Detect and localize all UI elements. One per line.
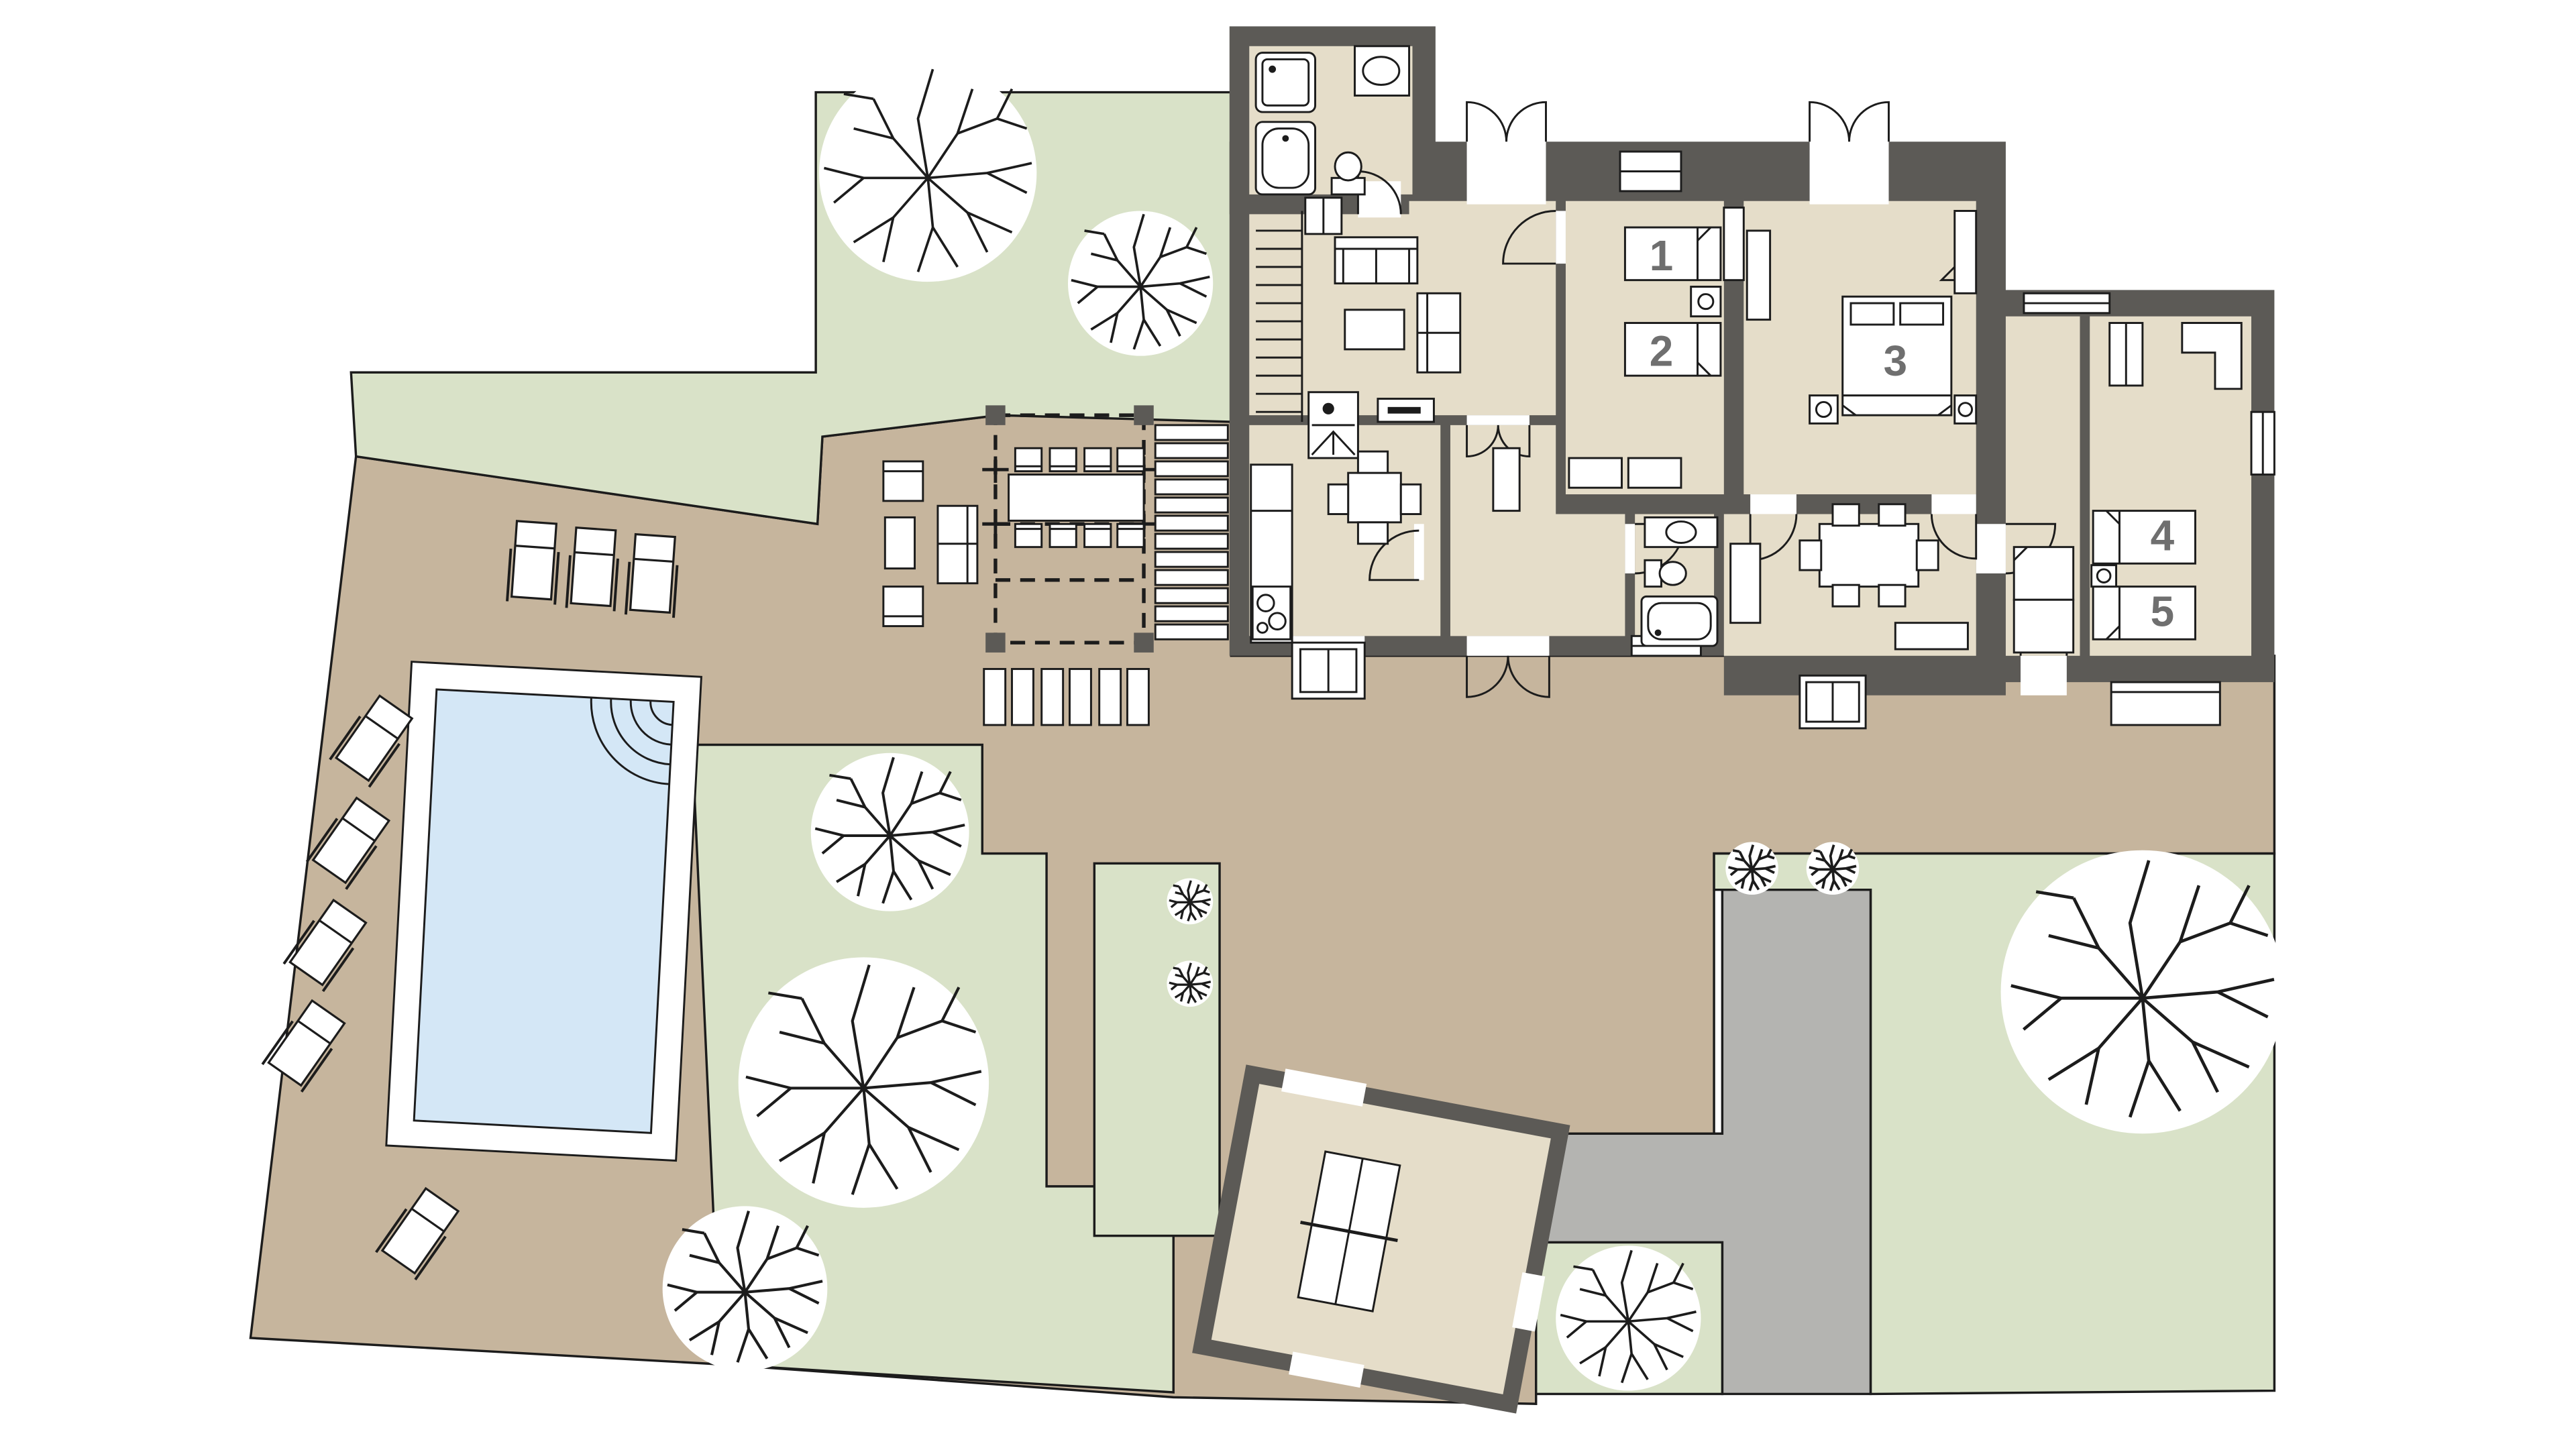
room-label-4: 4 (2151, 512, 2175, 560)
chest (1628, 458, 1681, 488)
coffee-table (885, 517, 914, 568)
room-label-3: 3 (1884, 337, 1908, 385)
armchair (883, 461, 923, 501)
outdoor-dining-table (1009, 475, 1144, 521)
bed-4 (2093, 511, 2195, 564)
room-label-1: 1 (1650, 231, 1674, 280)
tree (2001, 850, 2285, 1134)
main-house: 1 2 3 (1230, 26, 2275, 728)
tree (663, 1206, 828, 1371)
toilet (1332, 152, 1364, 194)
pool-water (414, 689, 674, 1133)
swimming-pool (386, 662, 702, 1161)
shrub (1167, 878, 1213, 924)
wood-stove (1309, 392, 1358, 458)
shrub (1167, 960, 1213, 1007)
kitchen-window-box (1292, 643, 1364, 699)
sideboard (1895, 623, 1968, 649)
floor-plan-canvas: 1 2 3 (0, 0, 2576, 1450)
shrub (1807, 842, 1860, 895)
wardrobe (1747, 231, 1770, 320)
closet (2014, 600, 2073, 653)
kitchen-sink (1252, 587, 1291, 640)
tree (1068, 211, 1213, 355)
entrance-hall (1493, 448, 1519, 510)
room-label-2: 2 (1650, 327, 1674, 375)
hall-wardrobe (1493, 448, 1519, 510)
tree (1556, 1245, 1701, 1390)
tree (819, 64, 1036, 282)
tree (739, 957, 989, 1207)
nightstand (1691, 286, 1721, 316)
dining-table (1819, 524, 1918, 586)
coffee-table (1345, 310, 1404, 349)
armchair (883, 587, 923, 626)
kitchen-table (1348, 473, 1401, 522)
chest (1569, 458, 1622, 488)
floor-plan-page: 1 2 3 (0, 0, 2576, 1450)
bed-5 (2093, 587, 2195, 640)
toilet (1645, 560, 1686, 586)
wing-outdoor-step (2111, 682, 2220, 725)
wing-entry (2014, 547, 2073, 653)
dining-window-box (1800, 675, 1866, 728)
closet (2014, 547, 2073, 600)
room-label-5: 5 (2151, 588, 2175, 636)
sideboard (1731, 544, 1760, 623)
wardrobe (1955, 211, 1976, 293)
nightstand (1810, 396, 1838, 424)
tree (811, 753, 969, 911)
closet (1724, 208, 1743, 280)
shrub (1725, 842, 1778, 895)
